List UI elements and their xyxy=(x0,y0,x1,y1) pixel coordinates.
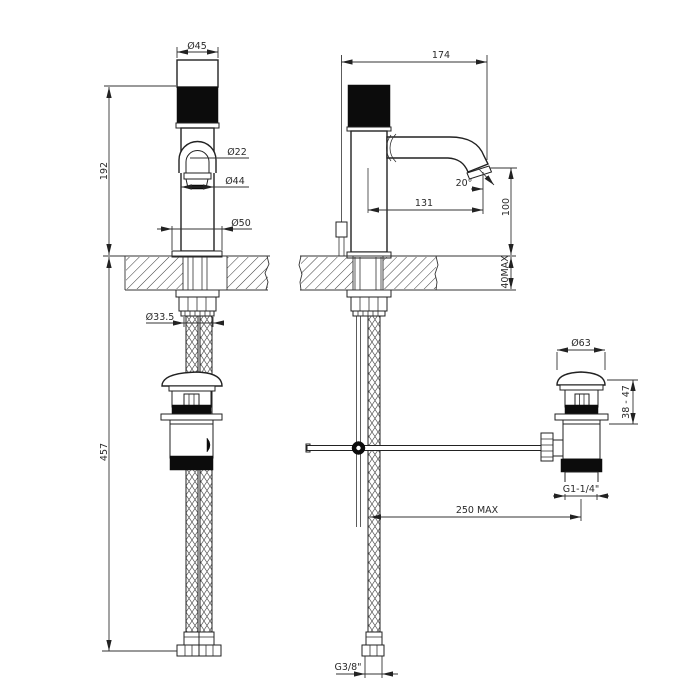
dim-waste-height-range: 38 - 47 xyxy=(607,380,638,424)
dim-spout-reach-label: 131 xyxy=(415,198,433,209)
dim-below-counter-label: 457 xyxy=(99,443,110,461)
front-popup-waste xyxy=(161,372,222,470)
front-view xyxy=(161,60,222,656)
dim-spout-angle-label: 20° xyxy=(456,178,473,189)
dim-waste-thread: G1-1/4" xyxy=(553,482,609,500)
dim-hose-thread: G3/8" xyxy=(334,656,398,678)
dim-shank-diameter-label: Ø33.5 xyxy=(146,312,175,323)
dim-spout-height-label: 100 xyxy=(501,198,512,216)
technical-drawing-page: Ø45 192 457 Ø22 Ø44 Ø50 xyxy=(0,0,700,700)
dim-rod-reach: 250 MAX xyxy=(370,499,581,521)
faucet-technical-drawing: Ø45 192 457 Ø22 Ø44 Ø50 xyxy=(0,0,700,700)
side-faucet xyxy=(347,85,492,258)
side-supply-hose xyxy=(362,314,384,656)
dim-body-diameter-label: Ø44 xyxy=(225,176,245,187)
dim-cap-diameter: Ø45 xyxy=(177,41,218,58)
side-view xyxy=(306,66,608,656)
dim-spout-height: 100 xyxy=(490,168,517,255)
dim-cap-diameter-label: Ø45 xyxy=(187,41,207,52)
front-supply-hoses xyxy=(177,314,221,656)
dim-overall-depth-label: 174 xyxy=(432,50,450,61)
popup-rod-upper xyxy=(336,66,347,256)
dim-waste-cap-label: Ø63 xyxy=(571,338,591,349)
dim-height-label: 192 xyxy=(99,162,110,180)
dim-waste-height-range-label: 38 - 47 xyxy=(621,385,632,419)
dim-hose-thread-label: G3/8" xyxy=(334,662,361,673)
dim-counter-thickness: 40MAX xyxy=(500,255,511,289)
front-faucet xyxy=(172,60,222,257)
dim-counter-thickness-label: 40MAX xyxy=(500,255,511,289)
side-popup-waste xyxy=(555,372,608,491)
countertop xyxy=(103,256,516,290)
dim-rod-reach-label: 250 MAX xyxy=(456,505,499,516)
dim-waste-thread-label: G1-1/4" xyxy=(563,484,600,495)
dim-base-diameter-label: Ø50 xyxy=(231,218,251,229)
popup-linkage xyxy=(306,316,563,527)
dim-height-to-handle: 192 xyxy=(99,86,176,255)
dim-waste-cap-diameter: Ø63 xyxy=(557,338,605,370)
dim-aerator-label: Ø22 xyxy=(227,147,247,158)
